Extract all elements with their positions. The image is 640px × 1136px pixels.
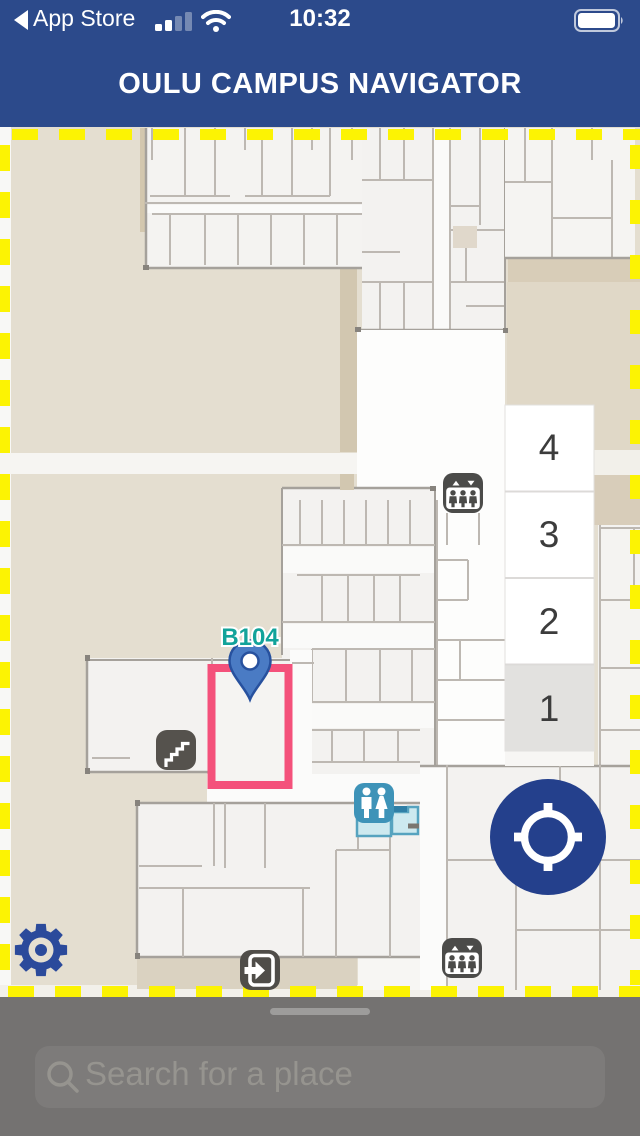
- svg-text:4: 4: [539, 427, 560, 468]
- svg-text:1: 1: [539, 688, 560, 729]
- svg-text:3: 3: [539, 514, 560, 555]
- svg-text:2: 2: [539, 601, 560, 642]
- svg-text:B104: B104: [221, 624, 279, 651]
